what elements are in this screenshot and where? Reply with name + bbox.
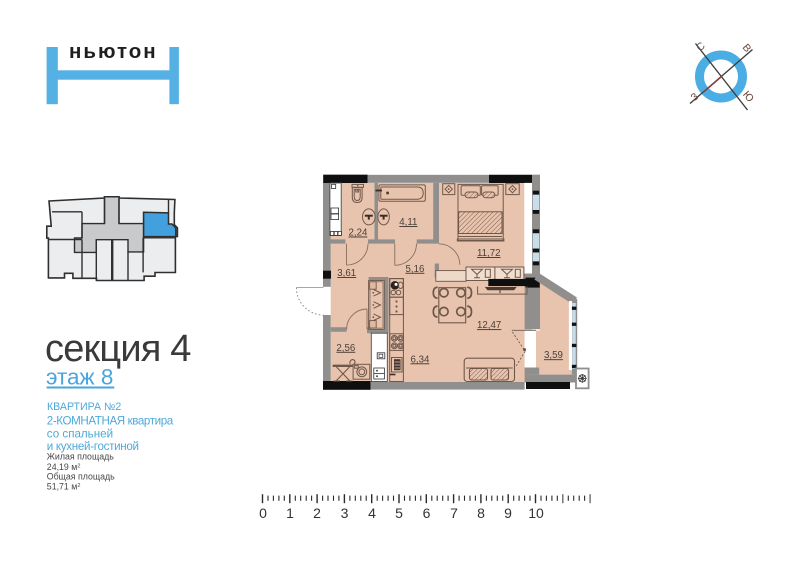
svg-text:КВАРТИРА №2: КВАРТИРА №2 bbox=[47, 401, 121, 413]
svg-text:12,47: 12,47 bbox=[477, 320, 501, 331]
svg-text:ньютон: ньютон bbox=[69, 40, 158, 63]
svg-text:2-КОМНАТНАЯ квартира: 2-КОМНАТНАЯ квартира bbox=[47, 415, 174, 428]
svg-text:этаж 8: этаж 8 bbox=[46, 365, 113, 390]
svg-text:2: 2 bbox=[313, 505, 321, 521]
svg-text:11,72: 11,72 bbox=[477, 248, 501, 259]
svg-text:6: 6 bbox=[423, 505, 431, 521]
svg-text:10: 10 bbox=[528, 505, 544, 521]
svg-text:0: 0 bbox=[259, 505, 267, 521]
svg-text:Общая площадь: Общая площадь bbox=[47, 472, 115, 482]
svg-text:4,11: 4,11 bbox=[399, 217, 417, 228]
svg-text:7: 7 bbox=[450, 505, 458, 521]
svg-text:2,56: 2,56 bbox=[336, 343, 355, 354]
svg-text:5: 5 bbox=[395, 505, 403, 521]
svg-text:3,59: 3,59 bbox=[544, 350, 563, 361]
svg-text:со спальней: со спальней bbox=[47, 428, 113, 441]
svg-text:Жилая площадь: Жилая площадь bbox=[47, 452, 114, 462]
svg-text:5,16: 5,16 bbox=[406, 264, 425, 275]
svg-text:8: 8 bbox=[477, 505, 485, 521]
svg-text:9: 9 bbox=[504, 505, 512, 521]
svg-text:24,19 м2: 24,19 м2 bbox=[47, 462, 81, 472]
svg-text:51,71 м2: 51,71 м2 bbox=[47, 482, 81, 492]
svg-text:4: 4 bbox=[368, 505, 376, 521]
svg-text:6,34: 6,34 bbox=[411, 354, 430, 365]
svg-text:3: 3 bbox=[341, 505, 349, 521]
svg-text:2,24: 2,24 bbox=[349, 228, 368, 239]
svg-text:1: 1 bbox=[286, 505, 294, 521]
svg-text:3,61: 3,61 bbox=[337, 268, 356, 279]
